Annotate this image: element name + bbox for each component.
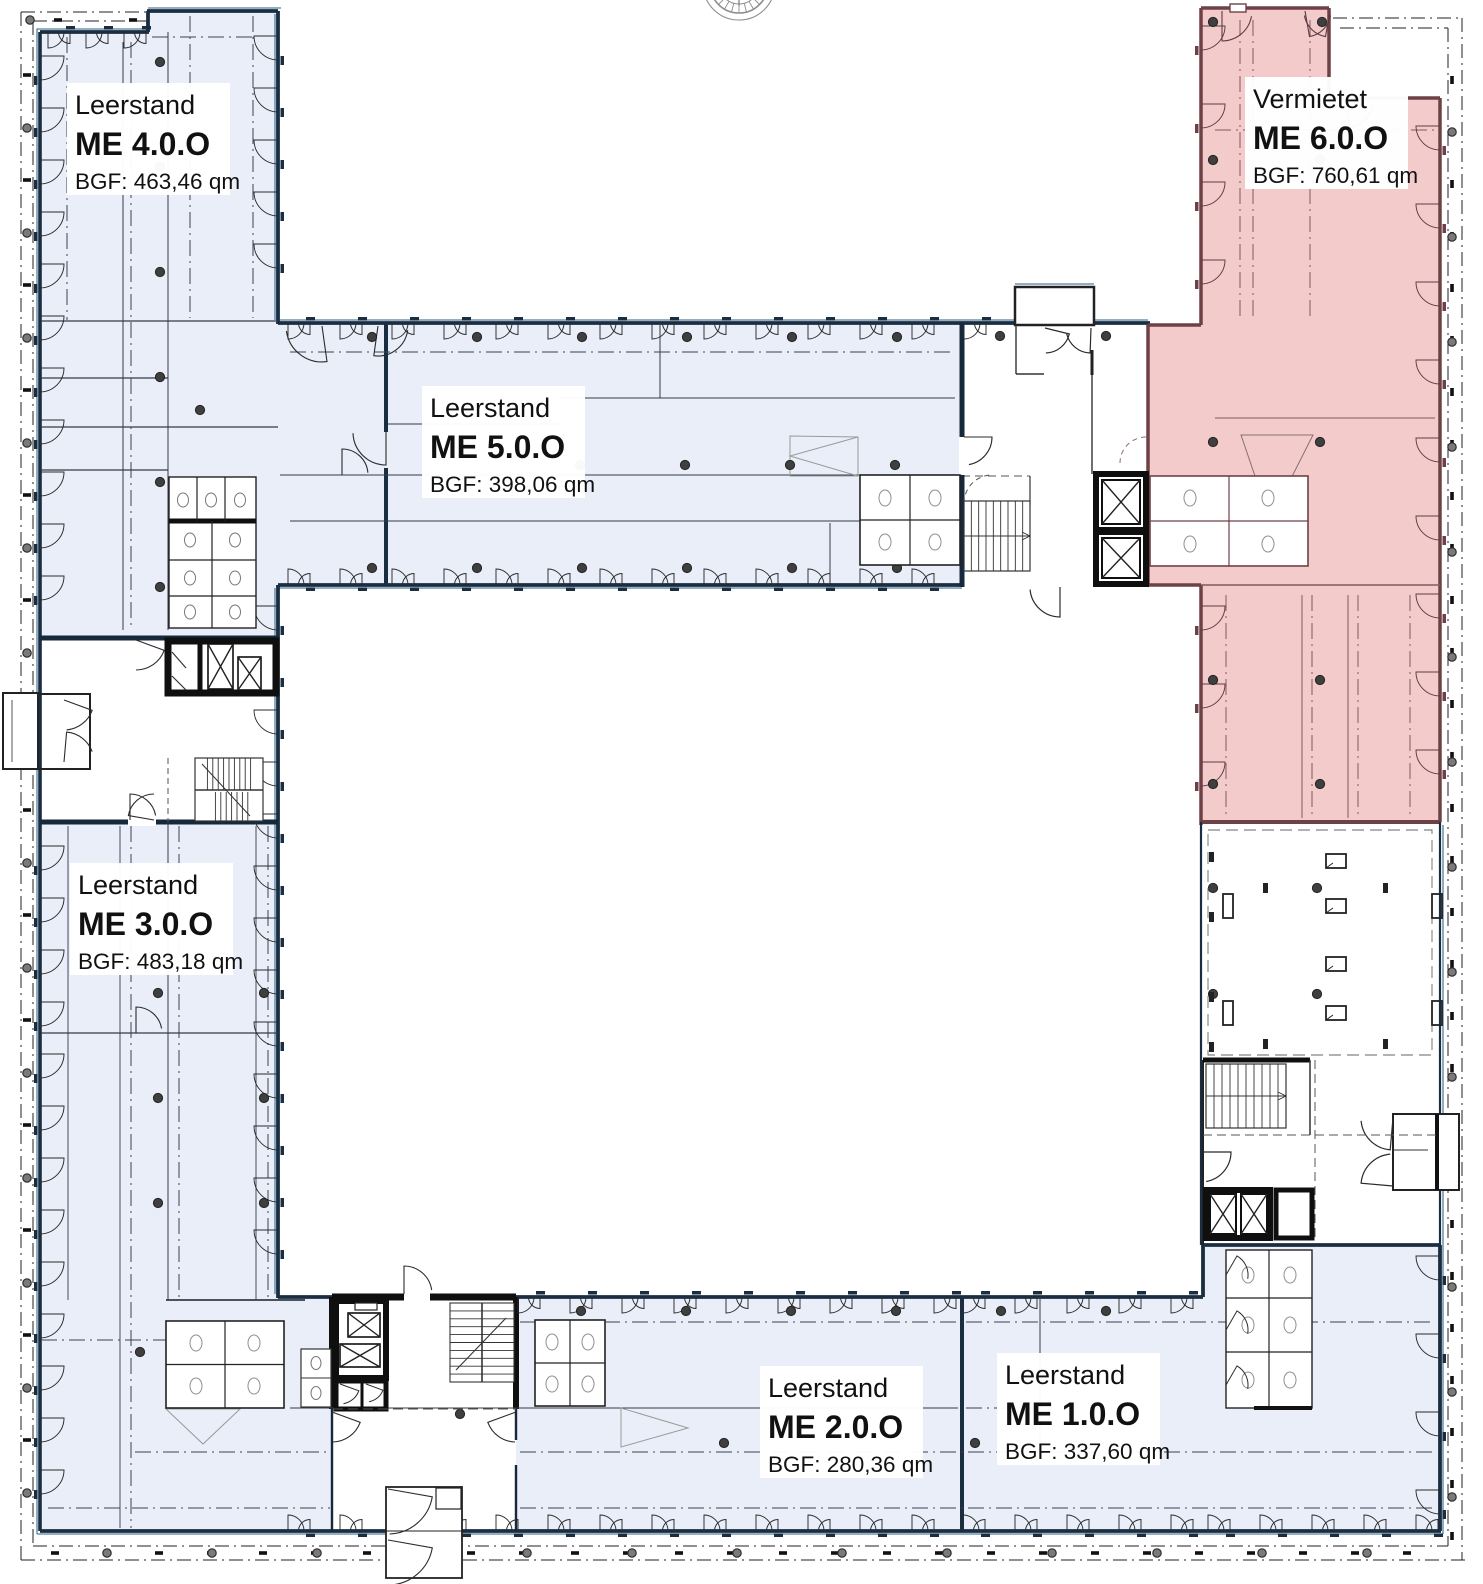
svg-text:ME 6.0.O: ME 6.0.O: [1253, 120, 1388, 156]
svg-text:BGF: 463,46 qm: BGF: 463,46 qm: [75, 169, 240, 194]
svg-text:Leerstand: Leerstand: [78, 870, 198, 900]
svg-text:BGF: 280,36 qm: BGF: 280,36 qm: [768, 1452, 933, 1477]
svg-text:Leerstand: Leerstand: [1005, 1360, 1125, 1390]
svg-text:Vermietet: Vermietet: [1253, 84, 1368, 114]
svg-text:ME 3.0.O: ME 3.0.O: [78, 906, 213, 942]
svg-text:BGF: 483,18 qm: BGF: 483,18 qm: [78, 949, 243, 974]
svg-text:ME 1.0.O: ME 1.0.O: [1005, 1396, 1140, 1432]
svg-text:Leerstand: Leerstand: [768, 1373, 888, 1403]
svg-text:BGF: 760,61 qm: BGF: 760,61 qm: [1253, 163, 1418, 188]
svg-text:BGF: 398,06 qm: BGF: 398,06 qm: [430, 472, 595, 497]
svg-text:ME 2.0.O: ME 2.0.O: [768, 1409, 903, 1445]
svg-text:Leerstand: Leerstand: [75, 90, 195, 120]
svg-text:ME 4.0.O: ME 4.0.O: [75, 126, 210, 162]
svg-text:BGF: 337,60 qm: BGF: 337,60 qm: [1005, 1439, 1170, 1464]
svg-text:ME 5.0.O: ME 5.0.O: [430, 429, 565, 465]
svg-text:Leerstand: Leerstand: [430, 393, 550, 423]
